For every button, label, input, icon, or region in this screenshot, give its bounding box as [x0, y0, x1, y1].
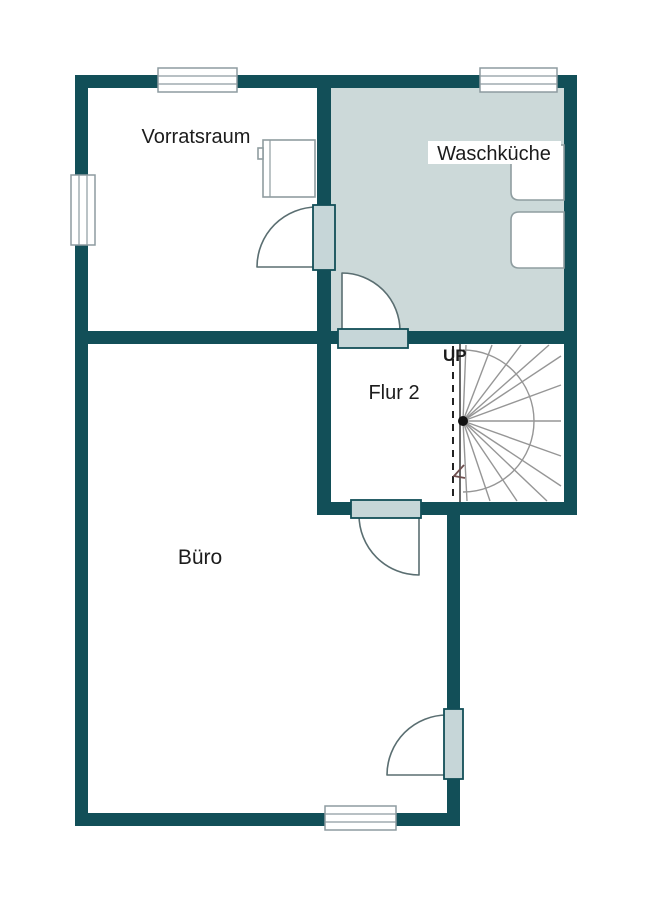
stair-treads	[463, 345, 561, 501]
door-leaf-vorratsraum	[313, 205, 335, 270]
washer-appliance-2	[511, 212, 564, 268]
wall-mid-horizontal-right	[404, 331, 577, 344]
door-leaf-buero	[444, 709, 463, 779]
wall-stair-bottom	[447, 502, 577, 515]
wall-flur-bottom-left	[317, 502, 353, 515]
wall-vertical-upper	[317, 88, 331, 205]
door-swing-vorratsraum	[257, 207, 317, 267]
stair-up-label: UP	[443, 346, 467, 365]
window-top-right	[480, 68, 557, 92]
window-left	[71, 175, 95, 245]
staircase	[453, 344, 561, 502]
window-top-left	[158, 68, 237, 92]
room-label-vorratsraum: Vorratsraum	[142, 126, 251, 148]
stair-newel-hub	[458, 416, 468, 426]
door-leaf-flur2	[351, 500, 421, 518]
room-label-waschkueche: Waschküche	[437, 143, 551, 165]
wall-bottom	[75, 813, 460, 826]
wall-mid-horizontal-left	[75, 331, 340, 344]
door-swing-buero	[387, 715, 447, 775]
wall-vertical-lower	[317, 270, 331, 502]
wall-right-upper	[564, 75, 577, 515]
room-label-buero: Büro	[178, 546, 222, 569]
door-swing-flur2	[359, 515, 419, 575]
door-leaf-waschkueche	[338, 329, 408, 348]
room-label-flur2: Flur 2	[368, 382, 419, 404]
floorplan-page: Vorratsraum Waschküche Flur 2 Büro UP	[0, 0, 653, 900]
floorplan-drawing: Vorratsraum Waschküche Flur 2 Büro UP	[0, 0, 653, 900]
wall-flur-bottom-right	[419, 502, 447, 515]
window-bottom	[325, 806, 396, 830]
storage-boiler-fixture	[258, 140, 315, 197]
